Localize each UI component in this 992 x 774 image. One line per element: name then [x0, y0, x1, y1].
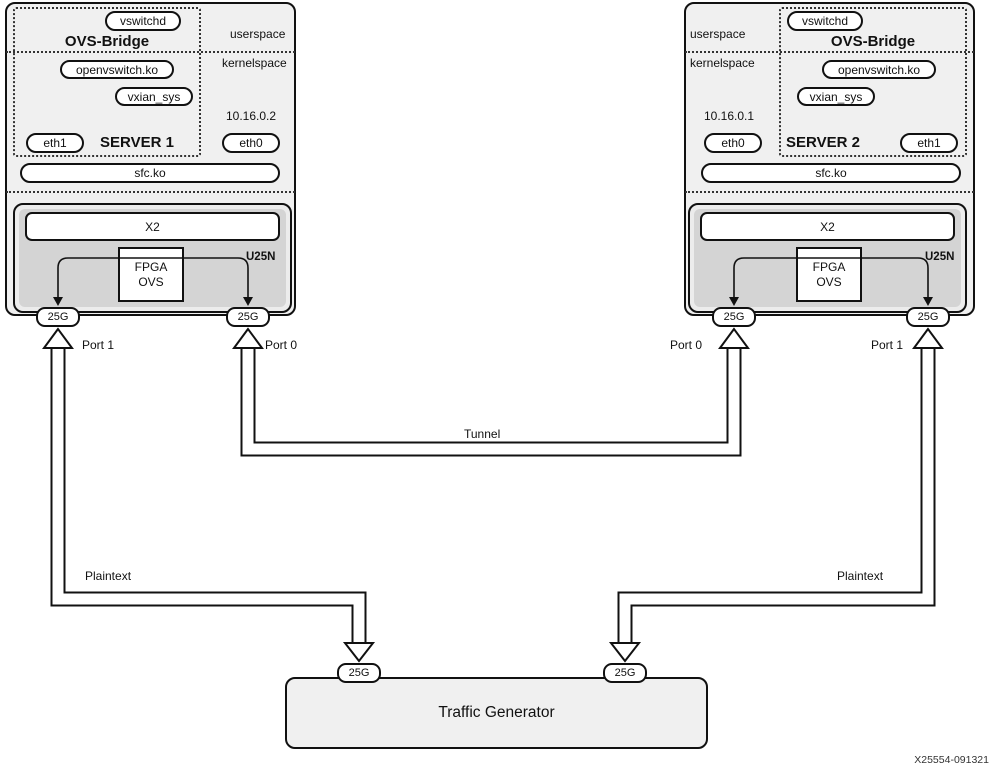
server2-userspace-label: userspace — [690, 27, 745, 41]
tunnel-label: Tunnel — [464, 427, 500, 441]
server1-left-nic-box: eth1 — [26, 133, 84, 153]
arrowhead-up — [914, 329, 942, 348]
arrowhead-up — [720, 329, 748, 348]
server2-left-nic-box: eth0 — [704, 133, 762, 153]
port-speed: 25G — [615, 667, 636, 679]
server1-right-nic-box: eth0 — [222, 133, 280, 153]
nic-label: eth0 — [239, 136, 262, 150]
server2-ip-address: 10.16.0.1 — [704, 109, 754, 123]
openvswitch-label: openvswitch.ko — [838, 63, 920, 77]
server1-x2-box: X2 — [25, 212, 280, 241]
server1-port0-25g-box: 25G — [226, 307, 270, 327]
openvswitch-label: openvswitch.ko — [76, 63, 158, 77]
fpga-label-line1: FPGA — [813, 260, 846, 275]
port-speed: 25G — [238, 311, 259, 323]
server1-userspace-kernelspace-divider — [6, 51, 295, 53]
server2-port1-25g-box: 25G — [906, 307, 950, 327]
port-speed: 25G — [48, 311, 69, 323]
server2-port0-label: Port 0 — [670, 338, 702, 352]
server1-userspace-label: userspace — [230, 27, 285, 41]
fpga-label-line2: OVS — [138, 275, 163, 290]
server1-port0-label: Port 0 — [265, 338, 297, 352]
arrowhead-up — [234, 329, 262, 348]
arrowhead-down — [611, 643, 639, 661]
server1-title: SERVER 1 — [100, 134, 174, 151]
server2-fpga-ovs-box: FPGA OVS — [796, 247, 862, 302]
server2-sfc-module-box: sfc.ko — [701, 163, 961, 183]
server2-kernelspace-label: kernelspace — [690, 56, 755, 70]
traffic-generator-box: Traffic Generator — [285, 677, 708, 749]
arrowhead-down — [345, 643, 373, 661]
vxlan-label: vxian_sys — [128, 90, 181, 104]
diagram-canvas: vswitchd OVS-Bridge userspace kernelspac… — [0, 0, 992, 774]
traffic-generator-label: Traffic Generator — [438, 704, 554, 722]
arrowhead-up — [44, 329, 72, 348]
server2-vswitchd-box: vswitchd — [787, 11, 863, 31]
server1-port1-25g-box: 25G — [36, 307, 80, 327]
server2-vxlan-interface-box: vxian_sys — [797, 87, 875, 106]
port-speed: 25G — [724, 311, 745, 323]
server2-openvswitch-module-box: openvswitch.ko — [822, 60, 936, 79]
x2-label: X2 — [820, 220, 835, 234]
traffic-generator-left-25g-box: 25G — [337, 663, 381, 683]
left-plaintext-label: Plaintext — [85, 569, 131, 583]
server1-ip-address: 10.16.0.2 — [226, 109, 276, 123]
x2-label: X2 — [145, 220, 160, 234]
server1-u25n-label: U25N — [246, 251, 275, 263]
port-speed: 25G — [349, 667, 370, 679]
server2-bridge-title: OVS-Bridge — [779, 33, 967, 50]
sfc-label: sfc.ko — [815, 166, 846, 180]
server2-right-nic-box: eth1 — [900, 133, 958, 153]
server2-u25n-label: U25N — [925, 251, 954, 263]
nic-label: eth0 — [721, 136, 744, 150]
vswitchd-label: vswitchd — [802, 14, 848, 28]
server1-sfc-module-box: sfc.ko — [20, 163, 280, 183]
right-plaintext-label: Plaintext — [837, 569, 883, 583]
server2-port0-25g-box: 25G — [712, 307, 756, 327]
nic-label: eth1 — [43, 136, 66, 150]
sfc-label: sfc.ko — [134, 166, 165, 180]
server1-port1-label: Port 1 — [82, 338, 114, 352]
server2-x2-box: X2 — [700, 212, 955, 241]
server1-vswitchd-box: vswitchd — [105, 11, 181, 31]
port-speed: 25G — [918, 311, 939, 323]
nic-label: eth1 — [917, 136, 940, 150]
figure-id: X25554-091321 — [905, 754, 989, 766]
server1-card-divider — [6, 191, 295, 193]
server1-openvswitch-module-box: openvswitch.ko — [60, 60, 174, 79]
fpga-label-line1: FPGA — [135, 260, 168, 275]
server2-card-divider — [685, 191, 974, 193]
server1-bridge-title: OVS-Bridge — [13, 33, 201, 50]
server2-userspace-kernelspace-divider — [685, 51, 974, 53]
server2-port1-label: Port 1 — [871, 338, 903, 352]
server1-vxlan-interface-box: vxian_sys — [115, 87, 193, 106]
server2-title: SERVER 2 — [786, 134, 860, 151]
vxlan-label: vxian_sys — [810, 90, 863, 104]
left-plaintext-link — [58, 348, 359, 644]
fpga-label-line2: OVS — [816, 275, 841, 290]
right-plaintext-link — [625, 348, 928, 644]
server1-kernelspace-label: kernelspace — [222, 56, 287, 70]
server1-fpga-ovs-box: FPGA OVS — [118, 247, 184, 302]
traffic-generator-right-25g-box: 25G — [603, 663, 647, 683]
vswitchd-label: vswitchd — [120, 14, 166, 28]
